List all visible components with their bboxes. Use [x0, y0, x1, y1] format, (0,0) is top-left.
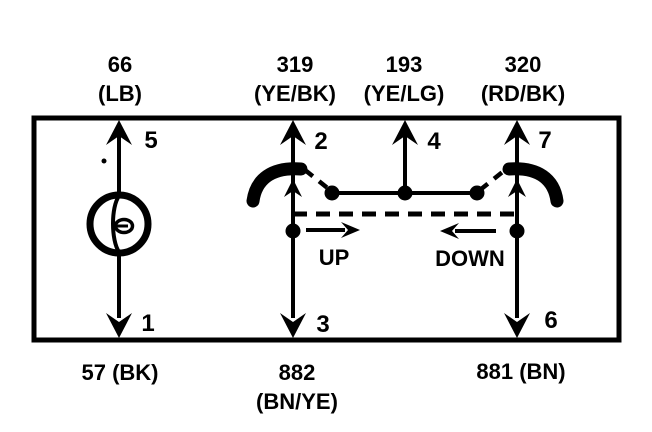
circuit-number-label: 882 — [279, 360, 316, 385]
junction-dot — [286, 224, 301, 239]
contact-dot — [398, 186, 413, 201]
pin-number-label: 2 — [314, 128, 327, 155]
pin-number-label: 3 — [316, 311, 329, 338]
linkage-dashed-left — [305, 170, 330, 190]
contact-bar — [325, 186, 485, 201]
wire-color-label: (YE/LG) — [364, 81, 445, 106]
window-switch-wiring-diagram: 66 (LB) 319 (YE/BK) 193 (YE/LG) 320 (RD/… — [0, 0, 652, 432]
pin-number-label: 7 — [538, 127, 551, 154]
down-contact-wire — [504, 120, 530, 338]
circuit-number-label: 881 (BN) — [476, 359, 565, 384]
wire-color-label: (LB) — [98, 81, 142, 106]
pin-number-label: 1 — [141, 310, 154, 337]
lamp-bulb-outline — [90, 195, 148, 253]
pin-number-label: 4 — [427, 128, 441, 155]
linkage-dashed-right — [480, 170, 505, 190]
down-direction-arrow — [440, 223, 496, 239]
lamp-icon — [90, 195, 148, 253]
circuit-number-label: 57 (BK) — [81, 360, 158, 385]
pin-number-label: 5 — [144, 127, 157, 154]
circuit-number-label: 320 — [505, 52, 542, 77]
circuit-number-label: 193 — [386, 52, 423, 77]
feed-wire — [392, 120, 418, 193]
down-label: DOWN — [435, 246, 505, 271]
diagram-canvas: 66 (LB) 319 (YE/BK) 193 (YE/LG) 320 (RD/… — [0, 0, 652, 432]
circuit-number-label: 319 — [277, 52, 314, 77]
contact-dot — [325, 186, 340, 201]
junction-dot — [510, 224, 525, 239]
wire-color-label: (BN/YE) — [256, 389, 338, 414]
pin-number-label: 6 — [544, 307, 557, 334]
scan-speck — [102, 159, 107, 164]
wire-color-label: (YE/BK) — [254, 81, 336, 106]
up-contact-wire — [280, 120, 306, 338]
up-label: UP — [319, 245, 350, 270]
wire-color-label: (RD/BK) — [481, 81, 565, 106]
lamp-circuit-wire — [90, 120, 148, 338]
circuit-number-label: 66 — [108, 52, 132, 77]
up-direction-arrow — [306, 222, 360, 238]
